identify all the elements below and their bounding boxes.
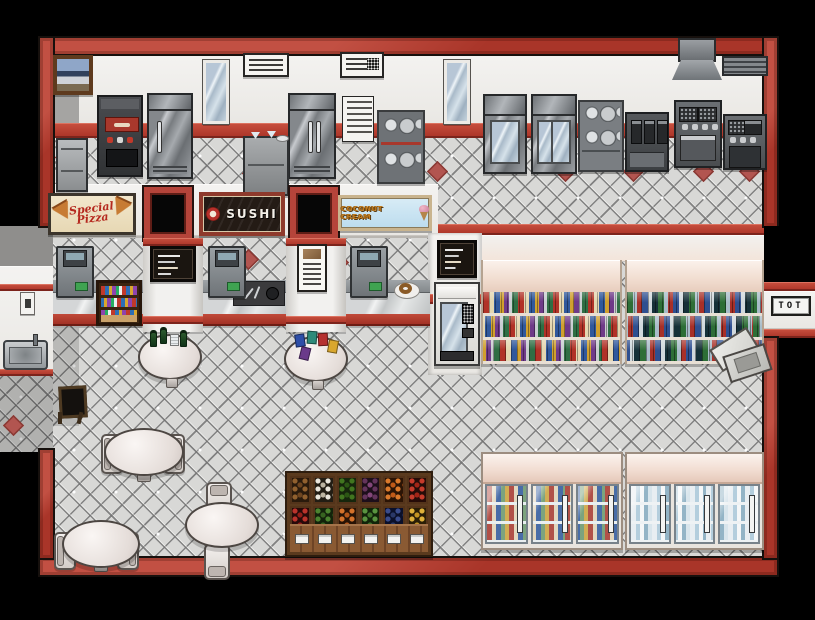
sandwich-board-sign <box>56 386 86 424</box>
stove-knobs[interactable] <box>730 137 756 143</box>
hot-snack-machine[interactable] <box>97 95 143 177</box>
coin-slot[interactable] <box>462 328 474 338</box>
station-cabinet <box>630 152 664 167</box>
vending-output-tray[interactable] <box>440 351 474 361</box>
sink-faucet <box>33 334 38 346</box>
corridor-floor-shade <box>0 376 53 452</box>
range-stove <box>674 100 722 168</box>
range-small <box>723 114 767 170</box>
menu-text-lines <box>347 101 372 137</box>
dining-table <box>104 428 184 476</box>
coffee-dispenser-station <box>625 112 669 172</box>
snack-shelf-row <box>483 292 620 316</box>
storefront-picture-frame <box>53 55 93 95</box>
freezer-door[interactable] <box>674 484 716 544</box>
freezer-top <box>627 454 762 484</box>
pot-rack <box>377 110 425 184</box>
sushi-roll-icon <box>205 205 222 222</box>
plates-icon <box>582 104 620 122</box>
corridor-cap-red <box>764 282 815 291</box>
cart-shelf <box>61 148 83 150</box>
menu-poster-photo <box>303 249 321 259</box>
candy-shelf <box>101 298 137 307</box>
wine-bottle-icon <box>150 330 157 347</box>
ice-cream-cone-icon <box>419 205 429 221</box>
plate-icon <box>276 135 289 142</box>
corridor-trim-bottom <box>0 369 53 376</box>
glass-door-fridge <box>483 94 527 174</box>
fork-icon <box>254 286 261 299</box>
burner-grid <box>679 107 698 122</box>
produce-bin <box>290 476 311 504</box>
dispenser-slot <box>106 149 138 167</box>
chalk-menu-lines <box>445 247 470 272</box>
dispenser-unit <box>644 120 655 144</box>
pillar-trim-bottom <box>143 316 203 324</box>
chalk-menu-lines <box>158 253 189 276</box>
price-tag <box>318 534 332 544</box>
cash-register-3[interactable] <box>350 246 388 298</box>
snack-machine-label <box>105 117 139 132</box>
wall-switch[interactable] <box>20 292 35 315</box>
wine-bottle-icon <box>160 327 167 344</box>
menu-poster-lines <box>303 263 321 287</box>
dish-shelf <box>578 100 624 172</box>
license-frame <box>340 52 384 78</box>
shelf-canopy <box>483 260 620 294</box>
corridor-floor-upper <box>0 226 53 266</box>
shelf-board <box>582 150 620 152</box>
snack-shelf-row <box>483 316 620 340</box>
counter-red-stripe <box>346 314 430 326</box>
shop-back-wall <box>438 235 764 262</box>
counter-red-stripe <box>203 314 286 326</box>
sushi-sign-label: SUSHI <box>226 207 278 221</box>
chair <box>204 544 230 580</box>
serving-cart <box>243 136 289 196</box>
freezer-door[interactable] <box>576 484 619 544</box>
frozen-food-case <box>481 452 623 550</box>
vending-top-panel <box>438 287 476 299</box>
pots-icon <box>381 116 421 134</box>
bowls-icon <box>381 150 421 168</box>
candy-rack-base <box>101 315 137 322</box>
box-inner <box>734 352 761 374</box>
vent-grille-icon <box>722 56 768 76</box>
icecream-sign-label: COCONUT CREAM <box>341 205 415 221</box>
pizza-sign-label: Special Pizza <box>62 201 122 228</box>
register-button[interactable] <box>227 282 240 291</box>
freezer-door[interactable] <box>531 484 574 544</box>
certificate-frame <box>243 53 289 77</box>
wall-border-bottom <box>40 558 777 575</box>
board-leg <box>58 412 62 424</box>
candy-display-rack <box>96 280 142 326</box>
button-white[interactable] <box>117 137 123 143</box>
freezer-door[interactable] <box>485 484 528 544</box>
cash-register-1[interactable] <box>56 246 94 298</box>
sushi-stall-sign: SUSHI <box>199 192 285 236</box>
candy-shelf <box>101 286 137 295</box>
fridge-top-cap <box>533 96 575 116</box>
dining-table <box>62 520 140 568</box>
shelf-canopy <box>627 260 762 294</box>
corridor-trim-top <box>0 284 53 291</box>
dispenser-unit <box>657 120 668 144</box>
price-tag <box>295 534 309 544</box>
pillar-trim-top <box>143 238 203 246</box>
cart-shelf <box>61 170 83 172</box>
cup-stack-icon <box>170 334 179 346</box>
pillar-trim-bottom <box>286 316 346 324</box>
produce-bin <box>407 476 428 504</box>
menu-poster <box>297 244 327 292</box>
certificate-text-lines <box>249 59 283 71</box>
shop-wall-red-stripe <box>438 224 764 235</box>
drink-shelf-row <box>627 292 762 316</box>
snack-goods-shelf <box>481 260 622 364</box>
freezer-doors <box>485 484 619 544</box>
wall-mirror-left <box>203 60 229 124</box>
oven-door[interactable] <box>729 146 761 168</box>
cart-shelf <box>248 164 284 166</box>
register-screen <box>215 250 239 267</box>
vending-machine[interactable] <box>434 282 480 366</box>
glass-door-fridge-double <box>531 94 577 174</box>
fridge-top-cap <box>485 96 525 116</box>
exit-corridor-right[interactable] <box>764 226 815 282</box>
freezer-top <box>483 454 621 484</box>
fridge-vents <box>153 166 187 174</box>
freezer-doors <box>629 484 760 544</box>
icecream-stall-sign: COCONUT CREAM <box>338 195 432 231</box>
table-pedestal <box>166 378 178 388</box>
burner-grid <box>698 107 717 122</box>
cash-register-2[interactable] <box>208 246 246 298</box>
wall-menu-card <box>342 96 374 142</box>
qr-code <box>367 58 379 70</box>
register-button[interactable] <box>75 282 88 291</box>
steel-fridge-double <box>288 93 336 179</box>
donut-icon <box>399 283 412 294</box>
fridge-glass-door[interactable] <box>490 120 520 164</box>
martini-glass-icon <box>251 132 260 139</box>
kitchen-cart-small <box>56 138 88 192</box>
produce-bin <box>383 476 404 504</box>
sandwich-board-face <box>58 385 88 418</box>
fridge-top-cap <box>149 95 191 111</box>
produce-bin <box>337 476 358 504</box>
dairy-case <box>625 452 764 550</box>
menu-blackboard-left <box>150 246 196 282</box>
fridge-vents <box>294 166 330 174</box>
register-screen <box>357 250 381 267</box>
machine-top-panel <box>101 99 139 109</box>
freezer-door[interactable] <box>718 484 760 544</box>
freezer-door[interactable] <box>629 484 671 544</box>
utensil-wall-sign: TOT <box>771 296 811 316</box>
snack-shelf-row <box>483 340 620 364</box>
produce-bin <box>313 476 334 504</box>
price-tag <box>364 534 378 544</box>
grill-tray <box>744 120 762 135</box>
fridge-handle[interactable] <box>157 121 162 153</box>
machine-buttons[interactable] <box>107 137 133 143</box>
kitchen-doorway-left[interactable] <box>144 187 192 240</box>
table-pedestal <box>312 380 324 390</box>
dining-table <box>185 502 259 548</box>
button-red[interactable] <box>127 137 133 143</box>
wine-bottle-icon <box>180 330 187 347</box>
book-icon <box>318 333 329 347</box>
vending-keypad[interactable] <box>462 304 474 324</box>
register-screen <box>63 250 87 267</box>
price-tag <box>387 534 401 544</box>
fridge-top-cap <box>290 95 334 111</box>
dispenser-unit <box>631 120 642 144</box>
wall-border-left-lower <box>40 450 53 558</box>
fridge-handle-left[interactable] <box>308 121 313 153</box>
game-viewport[interactable]: TOT <box>0 0 815 620</box>
wall-border-top <box>40 38 777 54</box>
stove-knobs[interactable] <box>682 124 718 130</box>
utensil-sign-label: TOT <box>778 301 803 311</box>
pots-icon <box>582 128 620 146</box>
produce-stand-base <box>290 524 428 552</box>
book-icon <box>294 333 306 347</box>
skillet-icon <box>266 287 279 300</box>
price-tag <box>410 534 424 544</box>
steel-fridge-single <box>147 93 193 179</box>
produce-bin <box>360 476 381 504</box>
sink-basin <box>9 347 42 364</box>
corridor-trim-red-right <box>764 329 815 338</box>
fridge-handle-right[interactable] <box>316 121 321 153</box>
oven-door[interactable] <box>680 135 716 161</box>
produce-row-top <box>290 476 428 504</box>
sink <box>3 340 48 370</box>
produce-stand <box>285 471 433 557</box>
book-icon <box>307 331 318 345</box>
hood-stack <box>678 38 716 62</box>
kitchen-doorway-right[interactable] <box>290 187 338 240</box>
register-button[interactable] <box>369 282 382 291</box>
price-tag <box>341 534 355 544</box>
fridge-glass-door-right[interactable] <box>551 120 571 164</box>
menu-blackboard-vending <box>437 240 477 278</box>
wall-mirror-right <box>444 60 470 124</box>
button-red[interactable] <box>107 137 113 143</box>
rack-shelf-red <box>381 142 421 145</box>
pizza-stall-sign: Special Pizza <box>48 193 136 235</box>
